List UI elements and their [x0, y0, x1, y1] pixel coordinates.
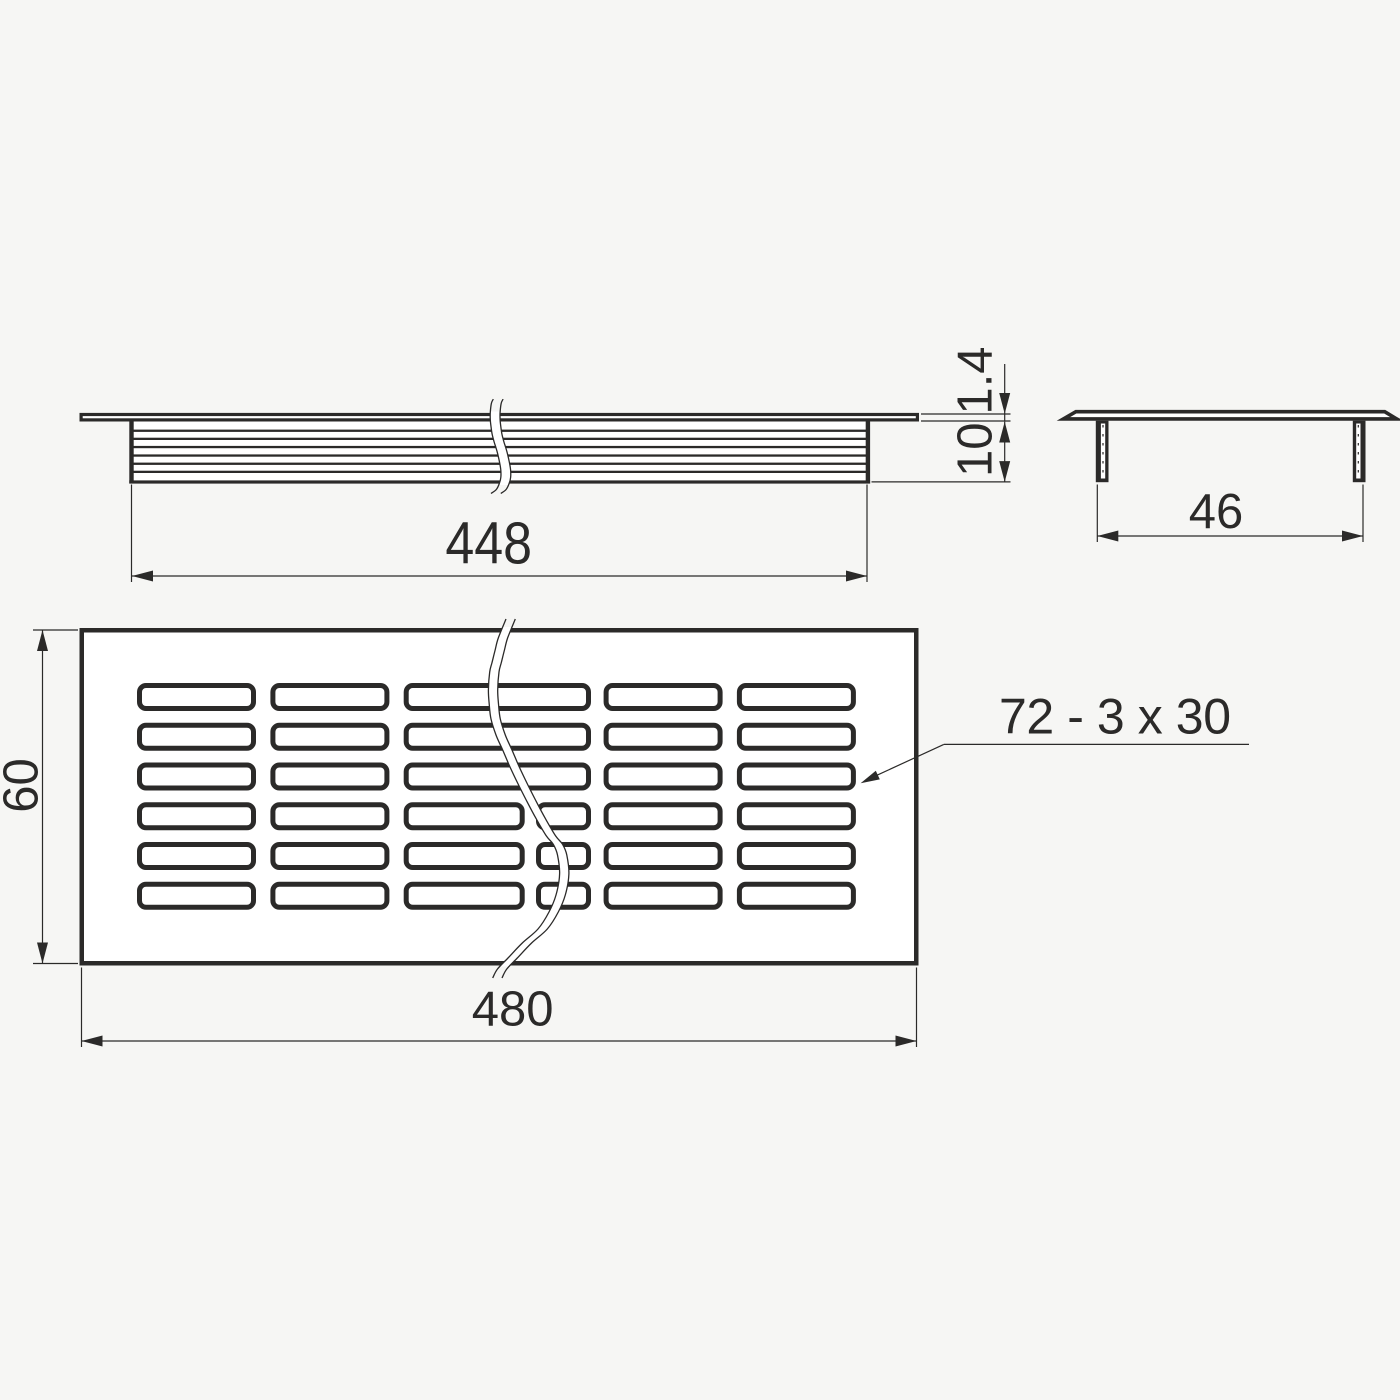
- svg-text:1.4: 1.4: [949, 346, 1003, 414]
- svg-text:10: 10: [949, 422, 1003, 477]
- svg-text:60: 60: [0, 758, 49, 813]
- svg-text:480: 480: [472, 983, 554, 1037]
- svg-text:72 - 3 x 30: 72 - 3 x 30: [999, 689, 1231, 745]
- svg-text:448: 448: [445, 509, 532, 576]
- svg-text:46: 46: [1189, 485, 1244, 539]
